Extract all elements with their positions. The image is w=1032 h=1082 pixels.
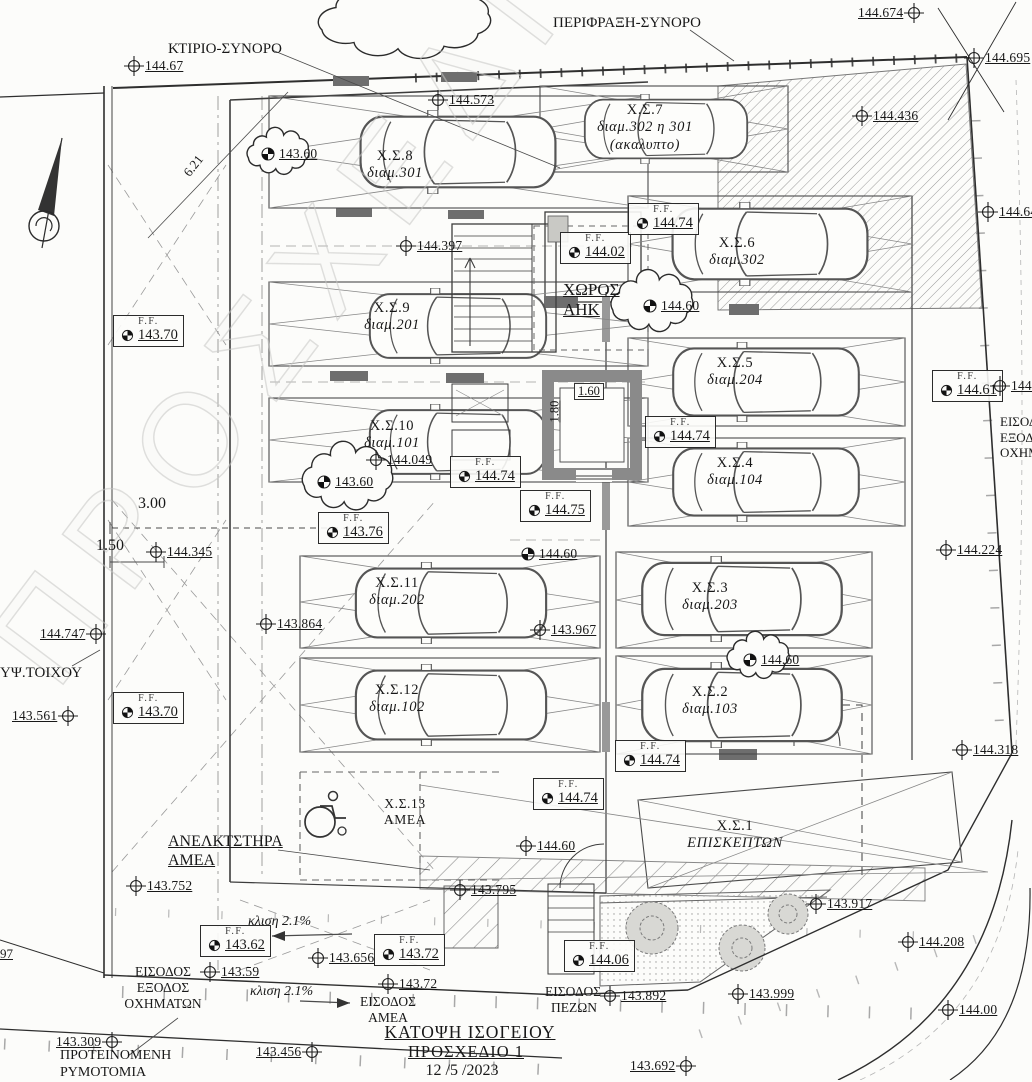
spot-elevation: 143.456 bbox=[256, 1042, 322, 1062]
spot-elevation: 143.795 bbox=[450, 880, 516, 900]
ff-marker: F.F.143.62 bbox=[200, 925, 271, 957]
spot-elevation: 144.318 bbox=[952, 740, 1018, 760]
spot-elevation-fragment: 97 bbox=[0, 946, 13, 962]
spot-elevation: 143.917 bbox=[806, 894, 872, 914]
ff-marker: F.F.143.70 bbox=[113, 692, 184, 724]
dim-1_5m: 1.50 bbox=[96, 536, 124, 555]
spot-elevation: 144.747 bbox=[40, 624, 106, 644]
stall-label-9: Χ.Σ.9διαμ.201 bbox=[364, 300, 420, 335]
spot-elevation: 144.345 bbox=[146, 542, 212, 562]
spot-elevation: 144.208 bbox=[898, 932, 964, 952]
ff-marker: F.F.144.06 bbox=[564, 940, 635, 972]
ff-marker: F.F.144.74 bbox=[615, 740, 686, 772]
spot-elevation: 143.59 bbox=[200, 962, 259, 982]
stall-label-10: Χ.Σ.10διαμ.101 bbox=[364, 418, 420, 453]
spot-elevation: 144.67 bbox=[124, 56, 183, 76]
ff-marker: F.F.144.74 bbox=[450, 456, 521, 488]
spot-elevation: 144.573 bbox=[428, 90, 494, 110]
spot-elevation: 143.656 bbox=[308, 948, 374, 968]
stall-label-8: Χ.Σ.8διαμ.301 bbox=[367, 148, 423, 183]
stall-label-7: Χ.Σ.7διαμ.302 η 301(ακαλυπτο) bbox=[597, 102, 693, 154]
spot-elevation: 143.72 bbox=[378, 974, 437, 994]
ff-marker: F.F.144.75 bbox=[520, 490, 591, 522]
spot-elevation: 143.999 bbox=[728, 984, 794, 1004]
slope-label-2: κλιση 2.1% bbox=[250, 984, 313, 1001]
stall-label-2: Χ.Σ.2διαμ.103 bbox=[682, 684, 738, 719]
ff-marker: F.F.143.72 bbox=[374, 934, 445, 966]
plan-title: ΚΑΤΟΨΗ ΙΣΟΓΕΙΟΥ bbox=[385, 1022, 556, 1043]
dim-3m: 3.00 bbox=[138, 494, 166, 513]
vehicle-entrance-label: ΕΙΣΟΔΟΣ ΕΞΟΔΟΣ ΟΧΗΜΑΤΩΝ bbox=[124, 964, 201, 1013]
building-boundary-label: ΚΤΙΡΙΟ-ΣΥΝΟΡΟ bbox=[168, 40, 282, 58]
stall-label-6: Χ.Σ.6διαμ.302 bbox=[709, 235, 765, 270]
ff-marker: F.F.143.70 bbox=[113, 315, 184, 347]
spot-elevation: 143.967 bbox=[530, 620, 596, 640]
plan-date: 12 /5 /2023 bbox=[426, 1061, 499, 1080]
stall-label-5: Χ.Σ.5διαμ.204 bbox=[707, 355, 763, 390]
spot-elevation: 144. bbox=[990, 376, 1032, 396]
plan-subtitle: ΠΡΟΣΧΕΔΙΟ 1 bbox=[408, 1042, 524, 1062]
spot-elevation: 144.674 bbox=[858, 3, 924, 23]
wheelchair-icon bbox=[305, 792, 346, 838]
ff-marker: F.F.144.74 bbox=[533, 778, 604, 810]
right-vehicle-entrance-label: ΕΙΣΟΔ ΕΞΟΔ ΟΧΗΜ bbox=[1000, 414, 1032, 461]
stall-label-13: Χ.Σ.13ΑΜΕΑ bbox=[384, 796, 426, 828]
stall-label-1: Χ.Σ.1ΕΠΙΣΚΕΠΤΩΝ bbox=[687, 818, 783, 853]
spot-elevation: 143.892 bbox=[600, 986, 666, 1006]
spot-elevation-cloud: 144.60 bbox=[640, 296, 699, 316]
spot-elevation: 143.309 bbox=[56, 1032, 122, 1052]
spot-elevation: 144.436 bbox=[852, 106, 918, 126]
plan-linework bbox=[0, 0, 1032, 1080]
lift-width-dim: 1.60 bbox=[574, 383, 604, 400]
pedestrian-entrance-label: ΕΙΣΟΔΟΣ ΠΕΖΩΝ bbox=[545, 984, 601, 1016]
stall-label-12: Χ.Σ.12διαμ.102 bbox=[369, 682, 425, 717]
lift-depth-dim: 1.80 bbox=[547, 401, 562, 423]
spot-elevation: 143.561 bbox=[12, 706, 78, 726]
amea-lift-label: ΑΝΕΛΚΤΣΤΗΡΑ ΑΜΕΑ bbox=[168, 832, 283, 870]
spot-elevation: 144.695 bbox=[964, 48, 1030, 68]
spot-elevation: 144.397 bbox=[396, 236, 462, 256]
fence-boundary-label: ΠΕΡΙΦΡΑΞΗ-ΣΥΝΟΡΟ bbox=[553, 14, 701, 32]
spot-elevation: 144.64 bbox=[978, 202, 1032, 222]
spot-elevation-cloud: 143.60 bbox=[258, 144, 317, 164]
tree-cloud bbox=[318, 0, 490, 58]
north-arrow-icon bbox=[29, 138, 62, 248]
stall-label-11: Χ.Σ.11διαμ.202 bbox=[369, 575, 425, 610]
ff-marker: F.F.143.76 bbox=[318, 512, 389, 544]
ff-marker: F.F.144.02 bbox=[560, 232, 631, 264]
floor-plan-scan: { "drawing": { "title_line1": "ΚΑΤΟΨΗ ΙΣ… bbox=[0, 0, 1032, 1080]
ff-marker: F.F.144.74 bbox=[645, 416, 716, 448]
spot-elevation: 144.00 bbox=[938, 1000, 997, 1020]
spot-elevation-cloud: 144.60 bbox=[740, 650, 799, 670]
spot-elevation: 143.752 bbox=[126, 876, 192, 896]
ahk-room-label: ΧΩΡΟΣ ΑΗΚ bbox=[563, 280, 620, 321]
proposed-alignment-label: ΠΡΟΤΕΙΝΟΜΕΝΗ ΡΥΜΟΤΟΜΙΑ bbox=[60, 1048, 171, 1082]
wall-height-label: ΥΨ.ΤΟΙΧΟΥ bbox=[0, 664, 82, 682]
stall-label-4: Χ.Σ.4διαμ.104 bbox=[707, 455, 763, 490]
stall-label-3: Χ.Σ.3διαμ.203 bbox=[682, 580, 738, 615]
spot-elevation: 143.692 bbox=[630, 1056, 696, 1076]
spot-elevation-cloud: 143.60 bbox=[314, 472, 373, 492]
spot-elevation: 144.60 bbox=[518, 544, 577, 564]
ff-marker: F.F.144.74 bbox=[628, 203, 699, 235]
spot-elevation: 144.049 bbox=[366, 450, 432, 470]
spot-elevation: 144.60 bbox=[516, 836, 575, 856]
spot-elevation: 144.224 bbox=[936, 540, 1002, 560]
spot-elevation: 143.864 bbox=[256, 614, 322, 634]
